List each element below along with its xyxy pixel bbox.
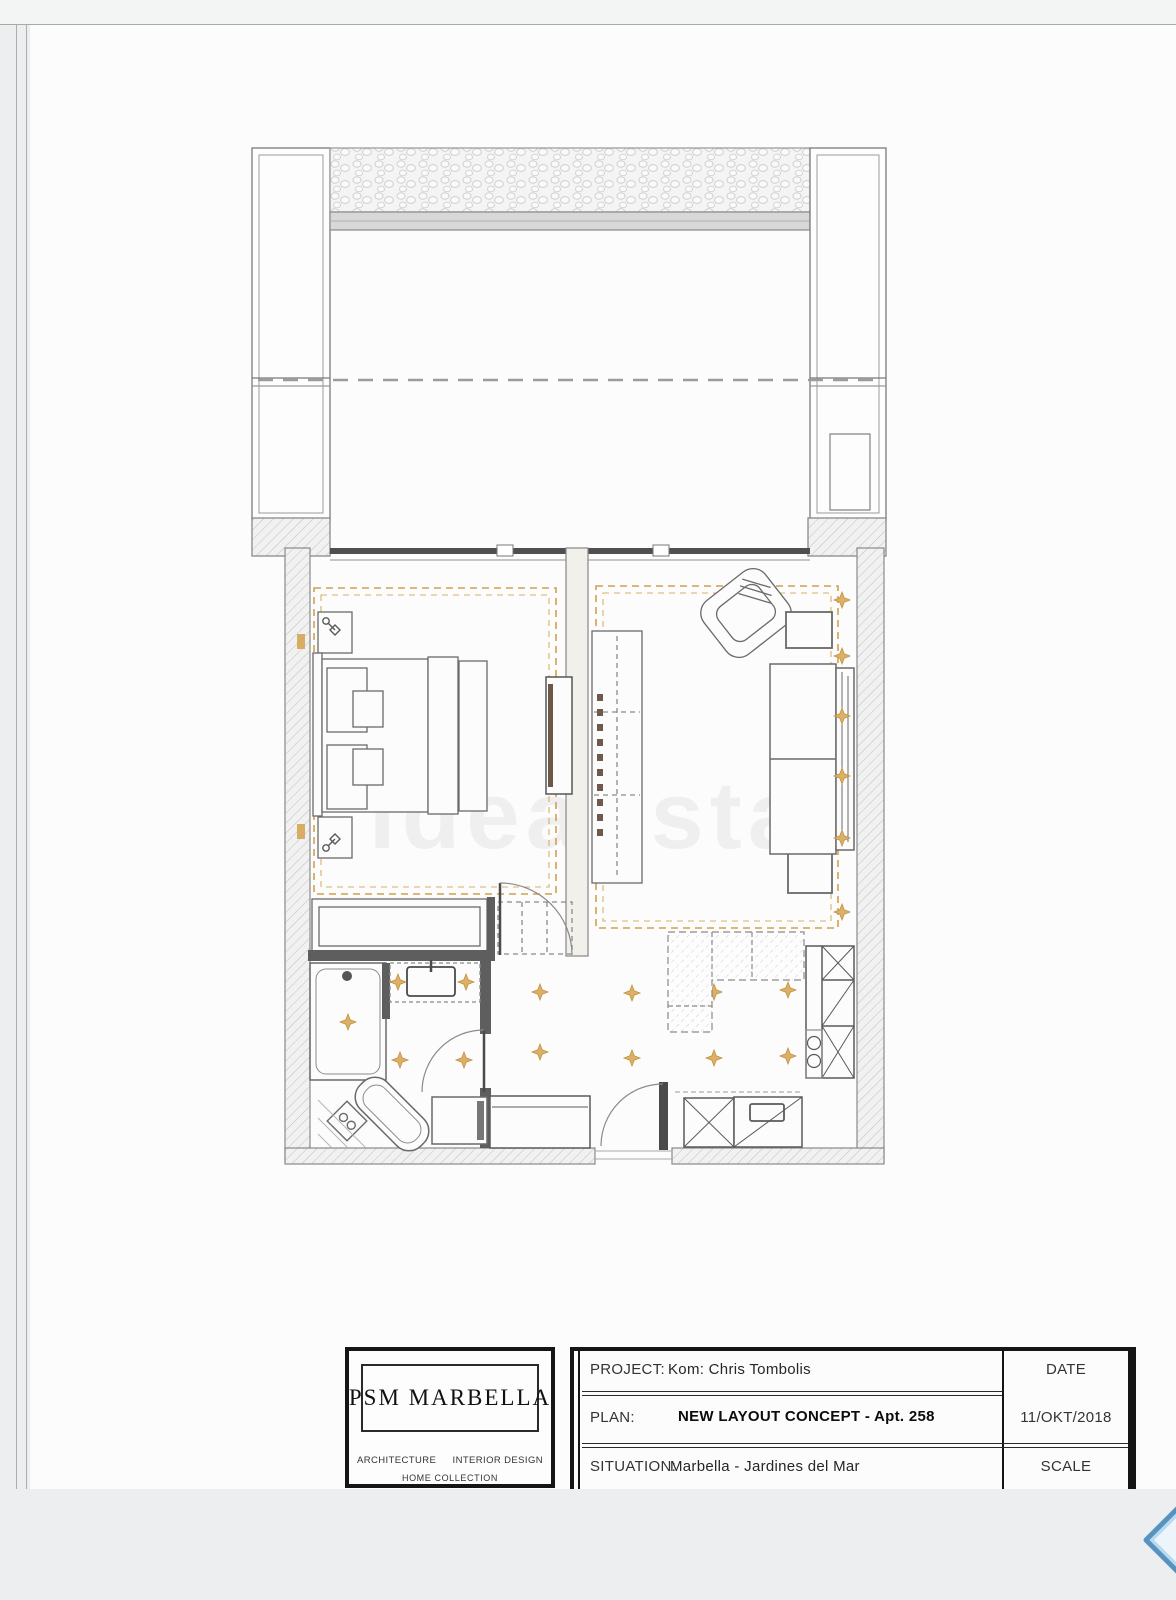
washing-machine — [432, 1097, 487, 1144]
interior-wall — [382, 963, 390, 1019]
nightstand — [318, 612, 352, 653]
pillow — [353, 691, 383, 727]
wall-bottom-right — [672, 1148, 884, 1164]
interior-wall — [480, 961, 491, 1034]
terrace-pergola-band — [330, 148, 810, 212]
wall-sconce — [297, 824, 305, 839]
project-label: PROJECT: — [590, 1361, 665, 1378]
logo-taglines: ARCHITECTURE INTERIOR DESIGN — [357, 1455, 543, 1466]
headboard — [313, 653, 322, 816]
tagline-home-collection: HOME COLLECTION — [349, 1473, 551, 1483]
side-table — [788, 850, 832, 893]
row-separator — [582, 1395, 1002, 1396]
scanned-plan-page: idealista — [0, 0, 1176, 1600]
scale-label: SCALE — [1004, 1458, 1128, 1475]
situation-value: Marbella - Jardines del Mar — [670, 1458, 860, 1475]
table-border-top — [570, 1347, 1136, 1351]
media-unit — [592, 631, 642, 883]
armchair — [694, 562, 797, 664]
tagline-interior-design: INTERIOR DESIGN — [453, 1455, 543, 1466]
side-table — [786, 612, 832, 648]
nightstand — [318, 817, 352, 858]
project-value: Kom: Chris Tombolis — [668, 1361, 811, 1378]
pillow — [353, 749, 383, 785]
double-bed — [313, 653, 487, 816]
plan-label: PLAN: — [590, 1409, 635, 1426]
date-value: 11/OKT/2018 — [1004, 1409, 1128, 1426]
sofa — [770, 664, 854, 854]
floor-plan-drawing: idealista — [0, 0, 1176, 1600]
entrance-door — [601, 1082, 668, 1150]
bed-foot-bench — [428, 657, 458, 814]
table-border-left-inner — [578, 1349, 580, 1489]
living-room — [592, 562, 854, 928]
entrance-threshold — [595, 1151, 672, 1159]
prev-photo-button[interactable] — [1128, 1498, 1176, 1584]
wall-bottom-left — [285, 1148, 595, 1164]
wall-tv-bedroom — [546, 677, 572, 794]
hall-spotlights — [340, 974, 796, 1068]
architect-logo-box: PSM MARBELLA ARCHITECTURE INTERIOR DESIG… — [345, 1347, 555, 1488]
date-label: DATE — [1004, 1361, 1128, 1378]
logo-frame: PSM MARBELLA — [361, 1364, 539, 1432]
terrace-planter-right — [810, 148, 886, 520]
terrace-planter-left — [252, 148, 330, 520]
row-separator — [582, 1443, 1128, 1444]
row-separator — [582, 1447, 1128, 1448]
plan-value: NEW LAYOUT CONCEPT - Apt. 258 — [678, 1408, 935, 1425]
tagline-architecture: ARCHITECTURE — [357, 1455, 436, 1466]
row-separator — [582, 1391, 1002, 1392]
logo-text: PSM MARBELLA — [349, 1385, 551, 1411]
situation-label: SITUATION: — [590, 1458, 676, 1475]
table-border-left — [570, 1347, 574, 1489]
kitchen-counter-L — [668, 932, 804, 1032]
terrace — [252, 148, 886, 556]
base-cabinets — [675, 1092, 802, 1147]
interior-wall — [308, 950, 495, 961]
bathroom-door — [422, 1030, 484, 1092]
bed-foot-bench — [459, 661, 487, 811]
tall-cabinet-column — [806, 946, 854, 1078]
table-border-right — [1128, 1347, 1136, 1489]
wall-sconce — [297, 634, 305, 649]
dashed-cabinet — [498, 902, 572, 954]
terrace-track-band — [330, 212, 810, 230]
wall-right — [857, 548, 884, 1162]
kitchen — [490, 932, 854, 1150]
entry-console — [490, 1096, 590, 1148]
sofa-backrest — [836, 668, 854, 850]
shower-head — [342, 971, 352, 981]
interior-wall — [487, 897, 495, 955]
